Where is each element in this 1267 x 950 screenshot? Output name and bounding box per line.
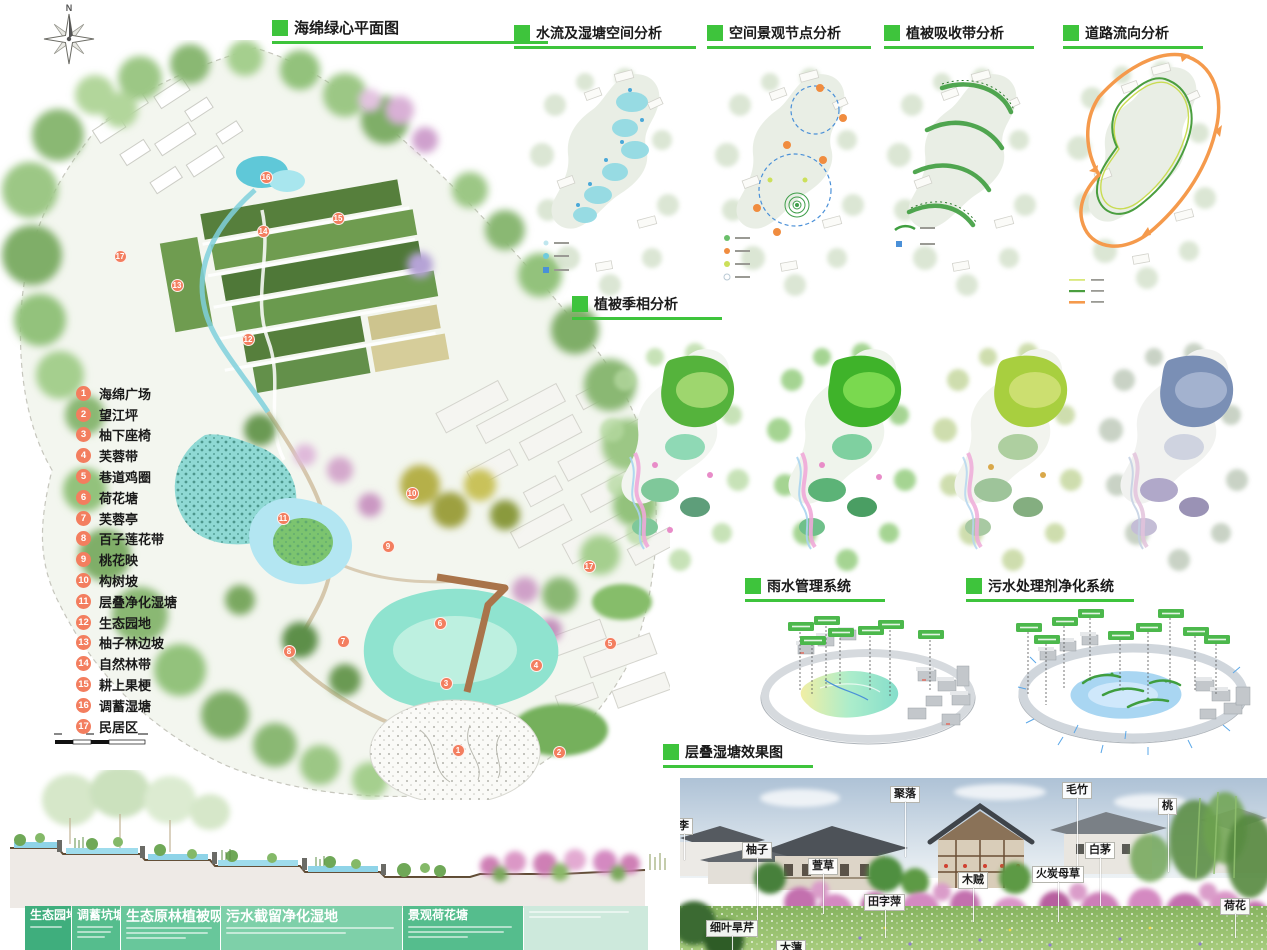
table-cell: 生态原林植被吸收带 (121, 906, 220, 950)
label-leader-line (1168, 814, 1169, 872)
plan-marker-2: 2 (553, 746, 566, 759)
legend-item: 8百子莲花带 (76, 529, 177, 550)
legend-number-badge: 2 (76, 407, 91, 422)
title-rain-system: 雨水管理系统 (745, 578, 885, 602)
legend-item: 12生态园地 (76, 612, 177, 633)
micro-text-line (77, 926, 113, 928)
plant-label: 柚子 (742, 842, 772, 859)
label-leader-line (1100, 858, 1101, 906)
micro-text-line (226, 927, 394, 929)
micro-text-line (126, 932, 208, 934)
label-leader-line (1235, 914, 1236, 938)
legend-number-badge: 10 (76, 573, 91, 588)
legend-label: 柚下座椅 (99, 425, 151, 444)
micro-text-line (529, 916, 601, 918)
title-main-text: 海绵绿心平面图 (294, 20, 399, 37)
label-leader-line (732, 936, 733, 950)
vegetation-map-legend (895, 226, 935, 247)
legend-number-badge: 13 (76, 635, 91, 650)
compass-north-label: N (66, 3, 73, 13)
title-vegetation-analysis: 植被吸收带分析 (884, 25, 1034, 49)
legend-item: 3柚下座椅 (76, 425, 177, 446)
plan-marker-5: 5 (604, 637, 617, 650)
plan-marker-16: 16 (260, 171, 273, 184)
table-cell-title: 污水截留净化湿地 (226, 908, 397, 924)
table-cell: 污水截留净化湿地 (221, 906, 402, 950)
table-cell-title: 调蓄坑塘 (77, 908, 115, 923)
title-bullet-icon (1063, 25, 1079, 41)
title-bullet-icon (745, 578, 761, 594)
title-bullet-icon (966, 578, 982, 594)
table-cell (524, 906, 648, 950)
legend-item: 13柚子林边坡 (76, 633, 177, 654)
table-cell: 生态园地 (25, 906, 71, 950)
legend-label: 生态园地 (99, 613, 151, 632)
legend-label: 桃花映 (99, 550, 138, 569)
plan-marker-17: 17 (583, 560, 596, 573)
plant-label: 荷花 (1220, 898, 1250, 915)
legend-number-badge: 9 (76, 552, 91, 567)
title-bullet-icon (572, 296, 588, 312)
plan-marker-12: 12 (242, 333, 255, 346)
seasonal-map-autumn (933, 343, 1082, 571)
legend-number-badge: 7 (76, 511, 91, 526)
legend-item: 4芙蓉带 (76, 445, 177, 466)
micro-text-line (529, 911, 629, 913)
title-main: 海绵绿心平面图 (272, 20, 548, 44)
legend-item: 11层叠净化湿塘 (76, 591, 177, 612)
legend-item: 5巷道鸡圈 (76, 466, 177, 487)
title-seasonal-analysis: 植被季相分析 (572, 296, 722, 320)
legend-label: 荷花塘 (99, 488, 138, 507)
roads-analysis-map (1067, 53, 1222, 304)
plan-marker-7: 7 (337, 635, 350, 648)
legend-number-badge: 3 (76, 427, 91, 442)
plan-marker-3: 3 (440, 677, 453, 690)
plant-label: 田字萍 (864, 894, 905, 911)
seasonal-map-winter (1099, 343, 1248, 571)
title-bullet-icon (272, 20, 288, 36)
legend-item: 17民居区 (76, 716, 177, 737)
micro-text-line (77, 931, 111, 933)
legend-item: 9桃花映 (76, 549, 177, 570)
legend-label: 望江坪 (99, 405, 138, 424)
legend-number-badge: 8 (76, 531, 91, 546)
micro-text-line (226, 932, 346, 934)
label-leader-line (1058, 882, 1059, 922)
eco-process-table: 生态园地调蓄坑塘生态原林植被吸收带污水截留净化湿地景观荷花塘 (25, 906, 649, 950)
legend-label: 耕上果梗 (99, 675, 151, 694)
plan-marker-14: 14 (257, 225, 270, 238)
seasonal-map-summer (767, 343, 916, 571)
label-leader-line (973, 888, 974, 922)
legend-number-badge: 6 (76, 490, 91, 505)
plant-label: 聚落 (890, 786, 920, 803)
photo-illustration: 李柚子聚落毛竹桃白茅萱草木贼火炭母草田字萍细叶旱芹大薸荷花 (680, 778, 1267, 950)
plant-label: 大薸 (776, 940, 806, 950)
legend-number-badge: 1 (76, 386, 91, 401)
label-leader-line (684, 834, 685, 860)
sewage-diagram (1016, 609, 1250, 755)
plan-marker-17: 17 (114, 250, 127, 263)
roads-map-legend (1069, 279, 1104, 304)
legend-item: 10构树坡 (76, 570, 177, 591)
legend-label: 柚子林边坡 (99, 633, 164, 652)
legend-label: 芙蓉亭 (99, 509, 138, 528)
plan-marker-4: 4 (530, 659, 543, 672)
micro-text-line (408, 931, 504, 933)
table-cell: 景观荷花塘 (403, 906, 523, 950)
label-leader-line (885, 910, 886, 938)
plan-marker-6: 6 (434, 617, 447, 630)
legend-label: 构树坡 (99, 571, 138, 590)
table-cell-title: 景观荷花塘 (408, 908, 518, 923)
title-bullet-icon (884, 25, 900, 41)
title-nodes-analysis: 空间景观节点分析 (707, 25, 871, 49)
plan-marker-15: 15 (332, 212, 345, 225)
legend-item: 15耕上果梗 (76, 674, 177, 695)
rain-label-tags (788, 616, 944, 645)
legend-number-badge: 14 (76, 656, 91, 671)
legend-number-badge: 11 (76, 594, 91, 609)
label-leader-line (1077, 798, 1078, 872)
table-cell-title: 生态原林植被吸收带 (126, 908, 215, 924)
legend-item: 14自然林带 (76, 653, 177, 674)
label-leader-line (905, 802, 906, 857)
system-diagrams (740, 595, 1267, 760)
micro-text-line (77, 936, 105, 938)
plan-marker-11: 11 (277, 512, 290, 525)
legend-label: 自然林带 (99, 654, 151, 673)
legend-number-badge: 15 (76, 677, 91, 692)
presentation-board: { "colors": { "accent_green": "#3ec43c",… (0, 0, 1267, 950)
legend-item: 1海绵广场 (76, 383, 177, 404)
micro-text-line (408, 926, 512, 928)
table-cell: 调蓄坑塘 (72, 906, 120, 950)
legend-item: 7芙蓉亭 (76, 508, 177, 529)
legend-label: 芙蓉带 (99, 446, 138, 465)
title-water-analysis: 水流及湿塘空间分析 (514, 25, 696, 49)
plan-marker-1: 1 (452, 744, 465, 757)
plant-label: 毛竹 (1062, 782, 1092, 799)
legend-number-badge: 5 (76, 469, 91, 484)
legend-number-badge: 16 (76, 698, 91, 713)
legend-label: 百子莲花带 (99, 529, 164, 548)
legend-item: 2望江坪 (76, 404, 177, 425)
plan-marker-13: 13 (171, 279, 184, 292)
title-bullet-icon (707, 25, 723, 41)
plant-label: 桃 (1158, 798, 1177, 815)
plant-label: 白茅 (1085, 842, 1115, 859)
compass-icon: N (42, 12, 96, 66)
micro-text-line (408, 936, 468, 938)
micro-text-line (126, 927, 212, 929)
plant-label: 细叶旱芹 (706, 920, 758, 937)
plant-label: 李 (680, 818, 693, 835)
rainwater-diagram (761, 616, 975, 744)
title-render: 层叠湿塘效果图 (663, 744, 813, 768)
legend-label: 层叠净化湿塘 (99, 592, 177, 611)
legend-number-badge: 17 (76, 719, 91, 734)
label-leader-line (823, 874, 824, 914)
legend-number-badge: 12 (76, 615, 91, 630)
vegetation-analysis-map (887, 68, 1036, 296)
plant-label: 木贼 (958, 872, 988, 889)
title-roads-analysis: 道路流向分析 (1063, 25, 1203, 49)
legend-item: 16调蓄湿塘 (76, 695, 177, 716)
sewage-label-tags (1016, 609, 1230, 644)
legend-label: 海绵广场 (99, 384, 151, 403)
table-cell-title: 生态园地 (30, 908, 66, 923)
legend-label: 巷道鸡圈 (99, 467, 151, 486)
plan-legend: 1海绵广场2望江坪3柚下座椅4芙蓉带5巷道鸡圈6荷花塘7芙蓉亭8百子莲花带9桃花… (76, 383, 177, 737)
title-bullet-icon (663, 744, 679, 760)
legend-item: 6荷花塘 (76, 487, 177, 508)
plant-label: 萱草 (808, 858, 838, 875)
micro-text-line (126, 937, 186, 939)
plan-marker-9: 9 (382, 540, 395, 553)
label-leader-line (757, 858, 758, 920)
nodes-analysis-map (715, 68, 864, 296)
title-sewage-system: 污水处理剂净化系统 (966, 578, 1134, 602)
plan-marker-8: 8 (283, 645, 296, 658)
legend-number-badge: 4 (76, 448, 91, 463)
legend-label: 调蓄湿塘 (99, 696, 151, 715)
plan-marker-10: 10 (406, 487, 419, 500)
plant-label: 火炭母草 (1032, 866, 1084, 883)
legend-label: 民居区 (99, 717, 138, 736)
micro-text-line (30, 926, 62, 928)
title-bullet-icon (514, 25, 530, 41)
